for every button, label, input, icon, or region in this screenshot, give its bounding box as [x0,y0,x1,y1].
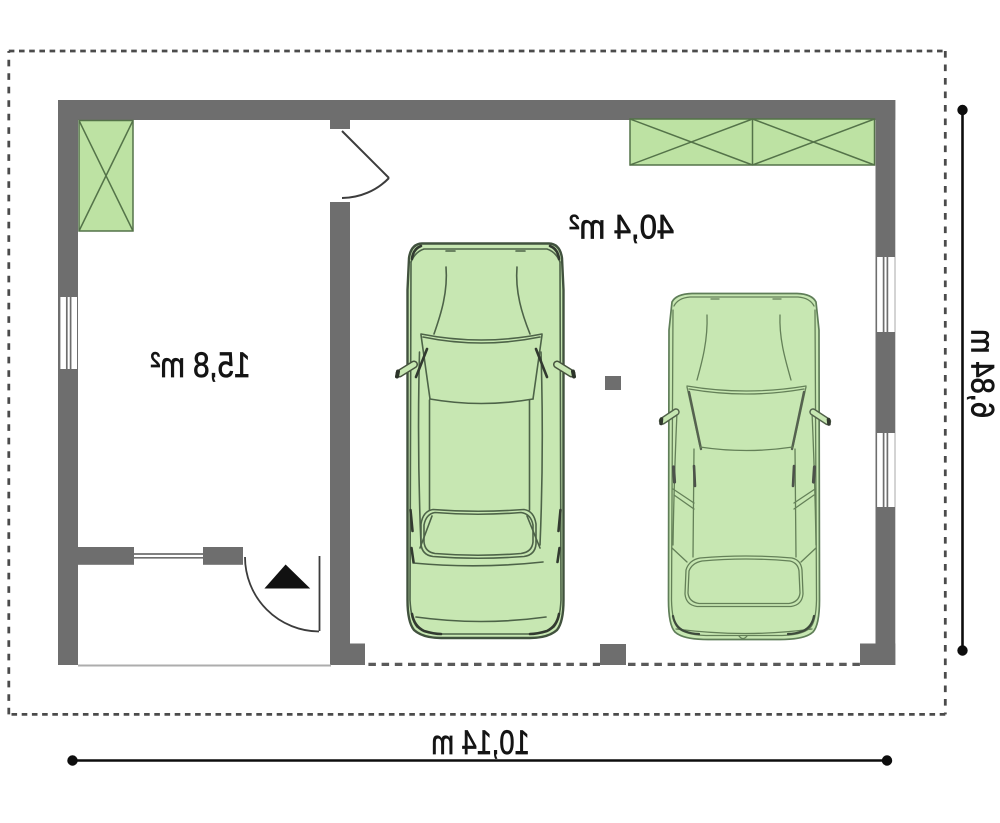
svg-text:40,4 m²: 40,4 m² [569,208,674,246]
svg-text:15,8 m²: 15,8 m² [150,344,250,384]
svg-text:10,14 m: 10,14 m [431,723,529,762]
svg-text:6,84 m: 6,84 m [964,329,1000,418]
